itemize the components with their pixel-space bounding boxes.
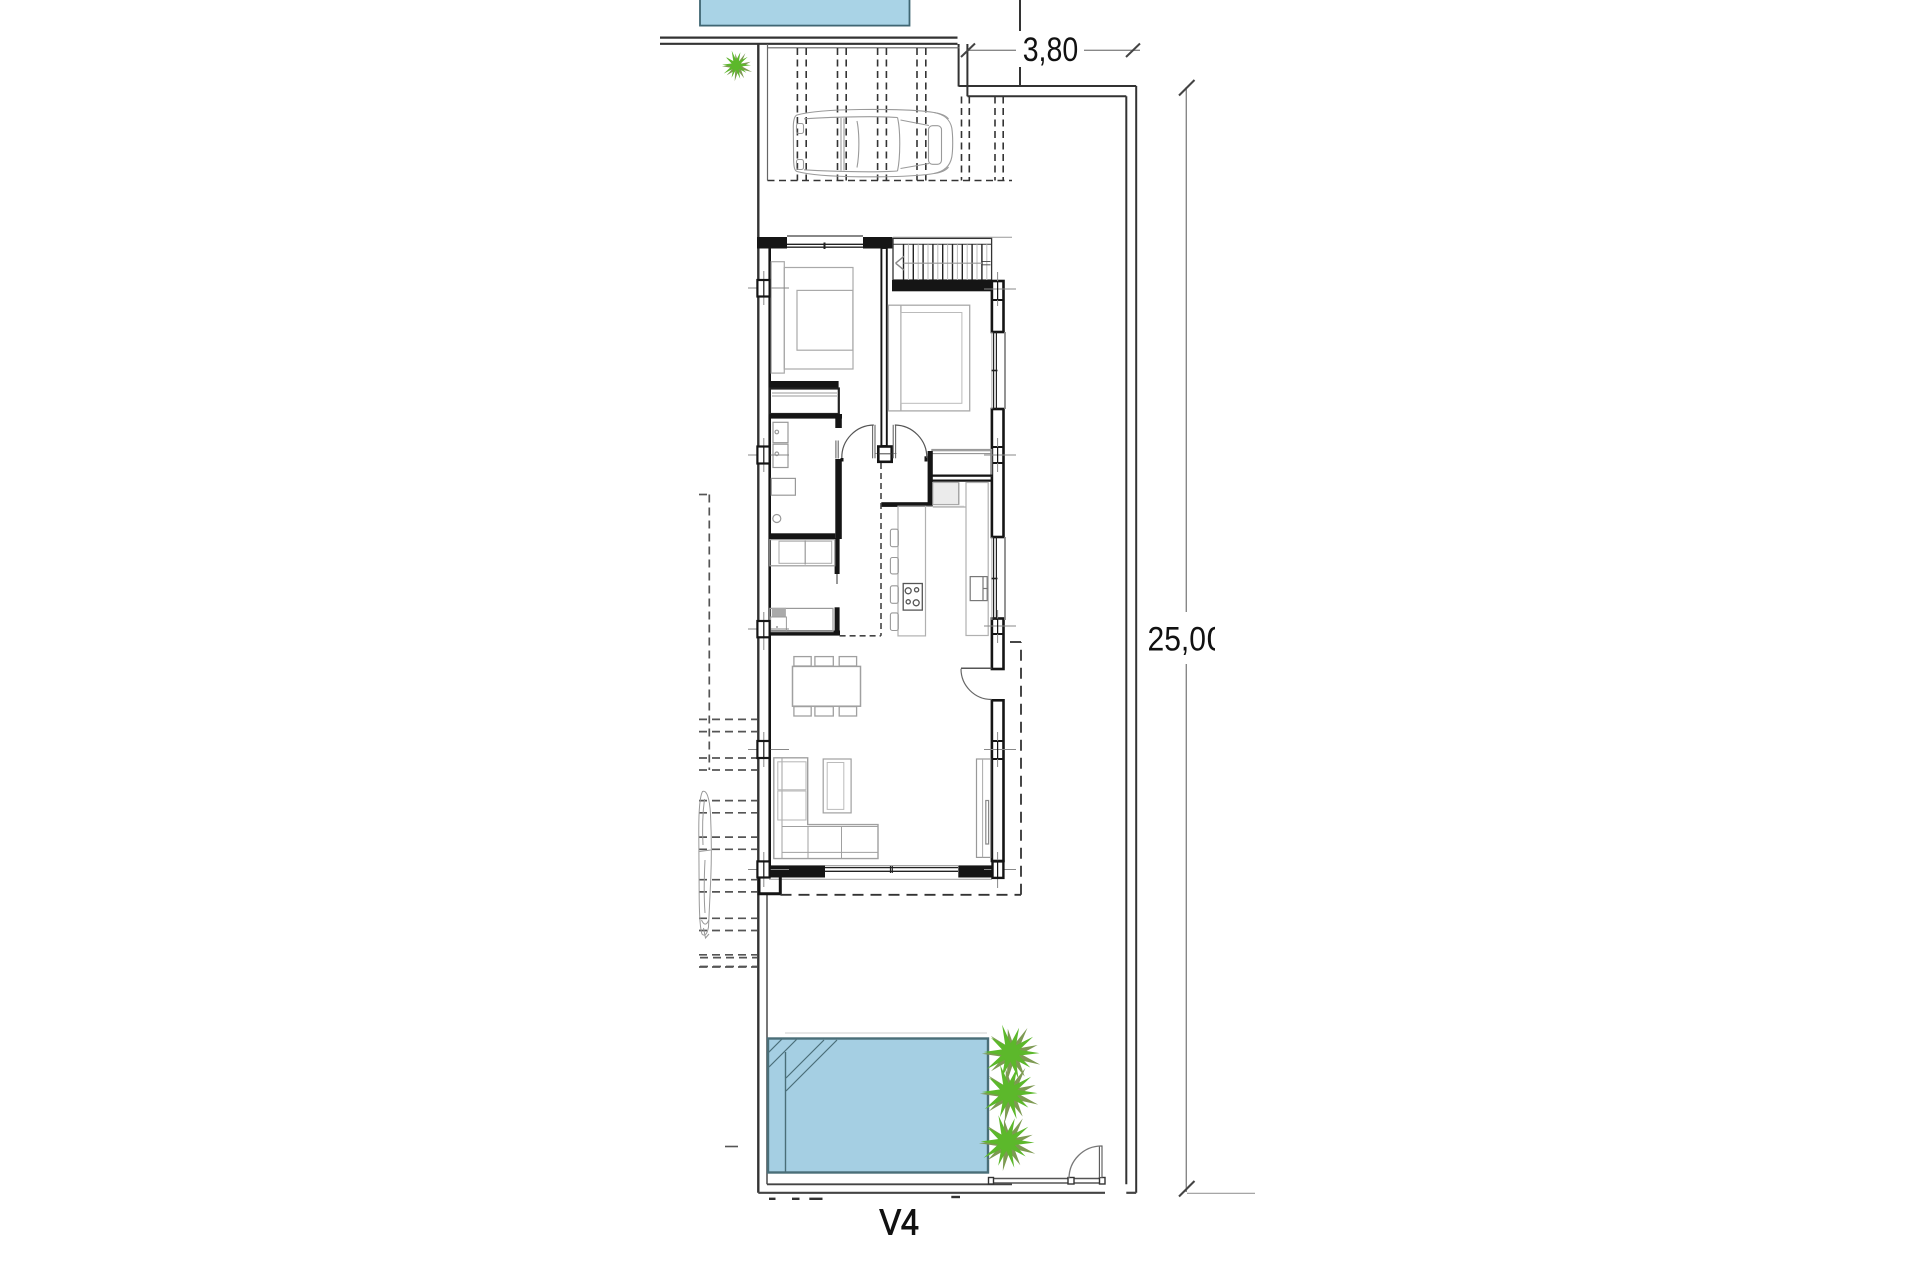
svg-text:25,0: 25,0 [1148,621,1207,659]
svg-text:3,80: 3,80 [1023,31,1078,69]
svg-text:V4: V4 [880,1202,920,1243]
